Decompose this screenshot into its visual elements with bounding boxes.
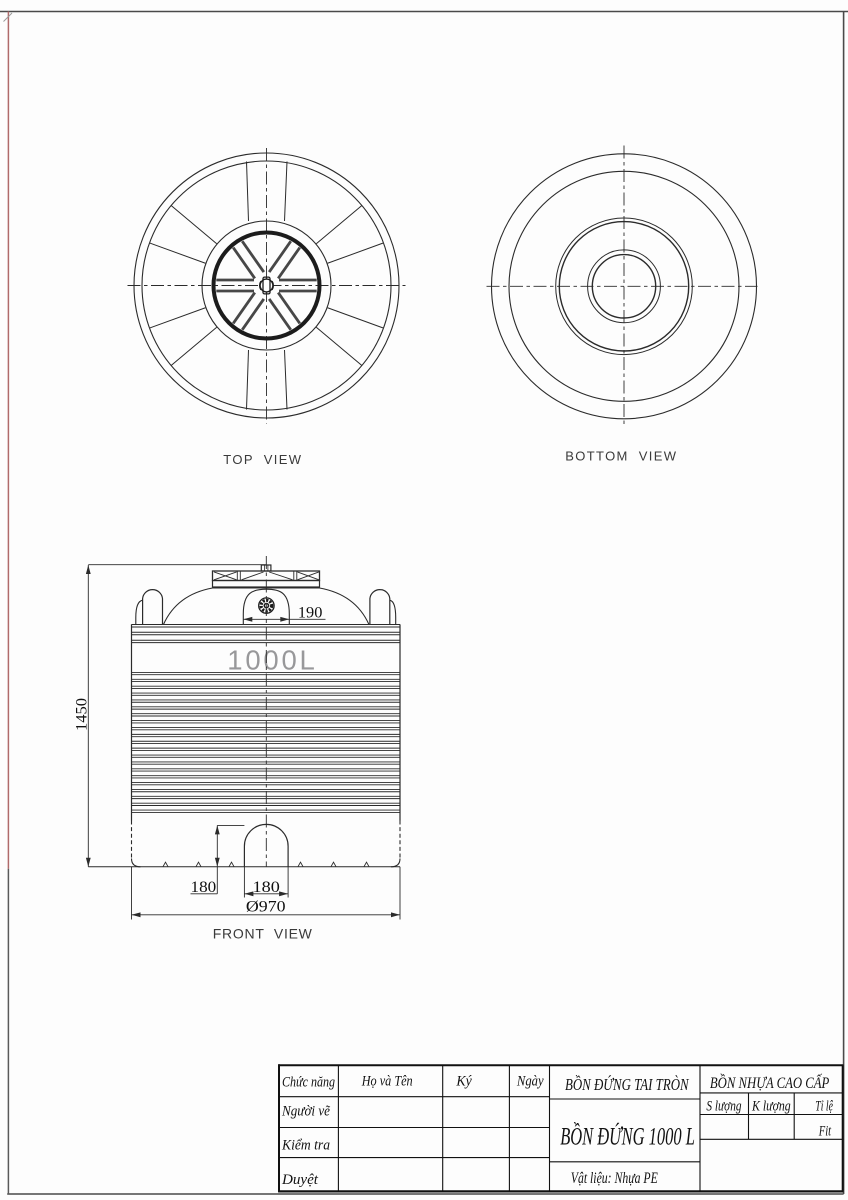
svg-text:180: 180 (191, 879, 217, 896)
svg-text:K lượng: K lượng (751, 1099, 791, 1115)
svg-text:180: 180 (253, 879, 280, 896)
svg-text:Ngày: Ngày (516, 1074, 544, 1090)
svg-text:S lượng: S lượng (706, 1099, 741, 1115)
svg-text:Vật liệu: Nhựa PE: Vật liệu: Nhựa PE (571, 1170, 658, 1187)
svg-text:Người vẽ: Người vẽ (281, 1104, 330, 1120)
svg-text:Họ và Tên: Họ và Tên (361, 1074, 413, 1090)
svg-text:1000L: 1000L (227, 645, 314, 676)
svg-text:Chức năng: Chức năng (282, 1075, 335, 1091)
svg-text:FRONT VIEW: FRONT VIEW (213, 926, 313, 942)
svg-text:Kiểm tra: Kiểm tra (281, 1138, 330, 1154)
svg-text:Fit: Fit (818, 1124, 832, 1140)
svg-text:TOP VIEW: TOP VIEW (223, 452, 301, 467)
svg-text:BỒN NHỰA CAO CẤP: BỒN NHỰA CAO CẤP (710, 1072, 830, 1092)
svg-text:BỒN ĐỨNG TAI TRÒN: BỒN ĐỨNG TAI TRÒN (565, 1074, 689, 1094)
svg-text:BOTTOM VIEW: BOTTOM VIEW (565, 449, 677, 464)
svg-text:Ký: Ký (455, 1074, 472, 1090)
svg-text:BỒN ĐỨNG 1000 L: BỒN ĐỨNG 1000 L (560, 1122, 695, 1151)
svg-text:Duyệt: Duyệt (281, 1172, 319, 1188)
svg-text:190: 190 (298, 604, 323, 621)
svg-text:Ø970: Ø970 (246, 899, 286, 916)
svg-text:1450: 1450 (74, 698, 91, 731)
svg-text:Tỉ lệ: Tỉ lệ (815, 1099, 833, 1115)
